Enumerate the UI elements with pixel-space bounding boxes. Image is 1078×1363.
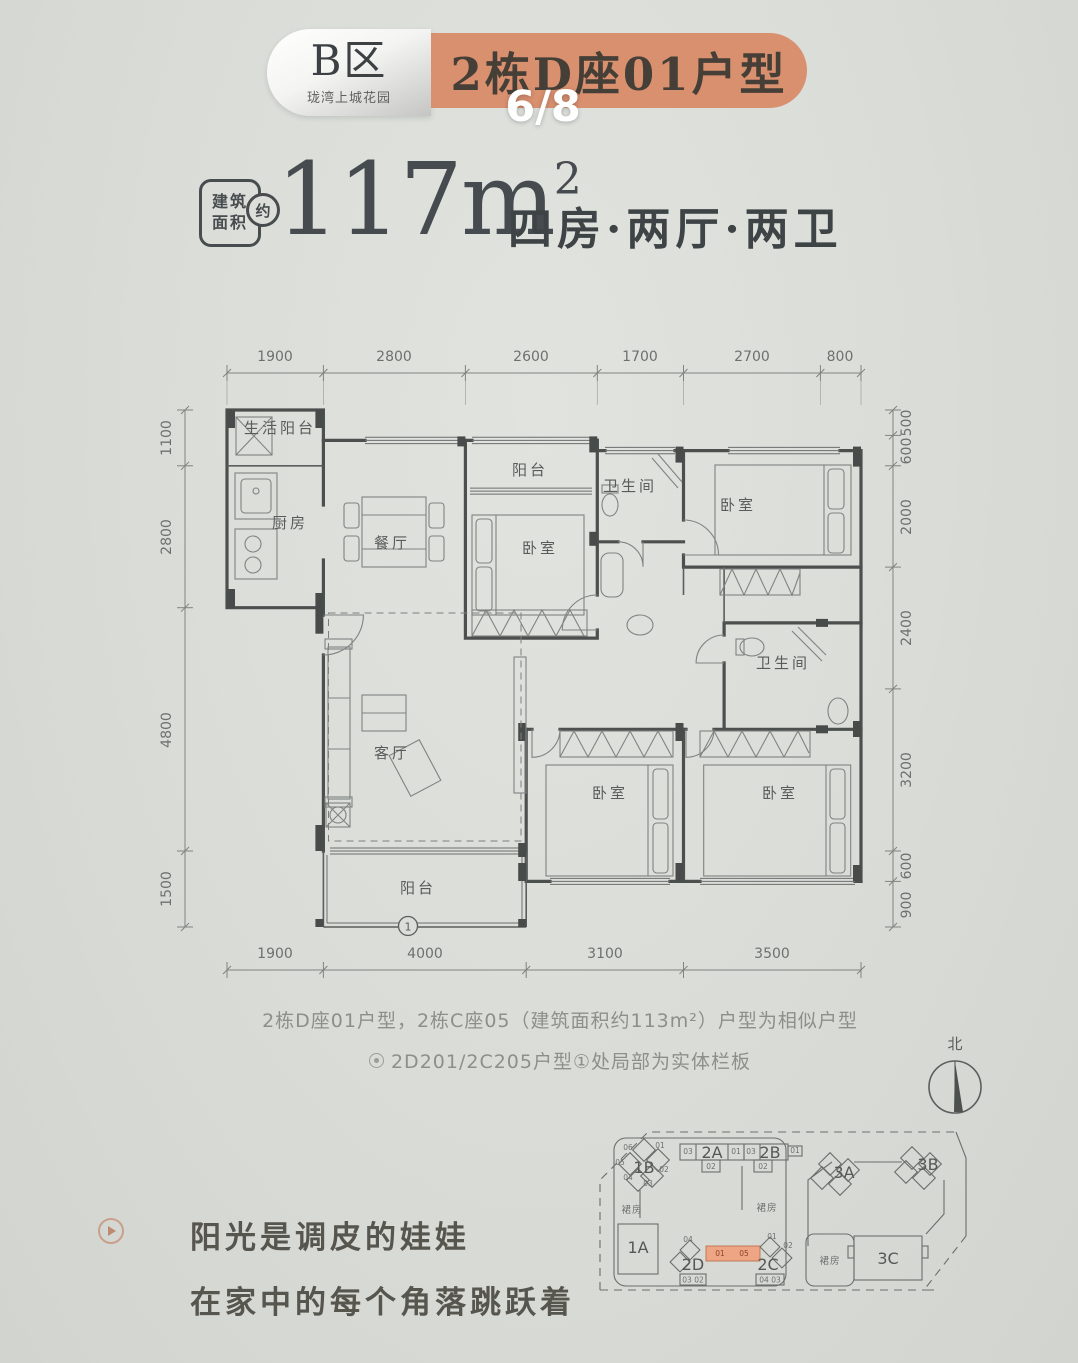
notes: 2栋D座01户型，2栋C座05（建筑面积约113m²）户型为相似户型 2D201… bbox=[150, 1006, 970, 1074]
site-podium1-label: 裙房 bbox=[621, 1204, 642, 1216]
unit-2b-03: 03 bbox=[746, 1147, 756, 1156]
dim-left-4: 1500 bbox=[159, 871, 175, 907]
dimension-left: 1100 2800 4800 1500 bbox=[159, 406, 193, 931]
label-balcony-top: 阳台 bbox=[512, 461, 548, 479]
dim-right-1: 500 bbox=[899, 410, 915, 437]
site-building-2a: 2A bbox=[701, 1143, 722, 1162]
note-line2-row: 2D201/2C205户型①处局部为实体栏板 bbox=[150, 1047, 970, 1074]
label-kitchen: 厨房 bbox=[272, 514, 308, 532]
dim-bottom-4: 3500 bbox=[754, 946, 790, 962]
unit-2c-01: 01 bbox=[767, 1232, 777, 1241]
balcony-marker: 1 bbox=[399, 917, 418, 936]
north-compass: 北 bbox=[915, 1032, 995, 1124]
unit-1b-01: 01 bbox=[655, 1141, 665, 1150]
site-building-2d: 2D bbox=[682, 1255, 705, 1274]
dim-right-7: 900 bbox=[899, 892, 915, 919]
note-bullet-icon bbox=[369, 1053, 384, 1068]
dim-top-6: 800 bbox=[827, 349, 854, 365]
unit-2c-04: 04 bbox=[759, 1276, 769, 1285]
site-building-1b: 1B bbox=[633, 1158, 654, 1177]
floorplan-poster: B区 珑湾上城花园 2栋D座01户型 6/8 建筑 面积 约 117m2 四房·… bbox=[0, 0, 1078, 1363]
site-building-1a: 1A bbox=[627, 1238, 648, 1257]
dimension-bottom: 1900 4000 3100 3500 bbox=[223, 946, 865, 978]
dim-top-4: 1700 bbox=[622, 349, 658, 365]
site-building-2b: 2B bbox=[759, 1143, 780, 1162]
zone-subtitle: 珑湾上城花园 bbox=[307, 87, 391, 106]
unit-2a-03: 03 bbox=[683, 1147, 693, 1156]
dim-bottom-3: 3100 bbox=[587, 946, 623, 962]
page-indicator: 6/8 bbox=[498, 82, 588, 132]
unit-2a-01: 01 bbox=[731, 1147, 741, 1156]
furniture bbox=[235, 417, 851, 876]
label-bedroom-a: 卧室 bbox=[522, 539, 558, 557]
label-bath-a: 卫生间 bbox=[603, 477, 657, 495]
zone-title: B区 bbox=[311, 40, 388, 82]
site-highlight-unit bbox=[706, 1246, 760, 1261]
highlight-unit-05: 05 bbox=[739, 1249, 749, 1258]
unit-2b-01: 01 bbox=[790, 1146, 800, 1155]
tagline-line1: 阳光是调皮的娃娃 bbox=[190, 1212, 470, 1257]
unit-1b-02: 02 bbox=[659, 1165, 669, 1174]
tagline-bullet-icon bbox=[98, 1218, 124, 1244]
tagline-line2: 在家中的每个角落跳跃着 bbox=[190, 1277, 575, 1322]
site-podium3-label: 裙房 bbox=[819, 1255, 840, 1267]
area-badge-line1: 建筑 bbox=[212, 192, 248, 213]
dim-right-4: 2400 bbox=[899, 610, 915, 646]
dimension-right: 500 600 2000 2400 3200 600 900 bbox=[885, 406, 915, 931]
unit-1b-05: 05 bbox=[615, 1158, 625, 1167]
unit-2b-02: 02 bbox=[758, 1162, 768, 1171]
area-badge-line2: 面积 bbox=[212, 213, 248, 234]
dim-right-3: 2000 bbox=[899, 499, 915, 535]
site-building-2c: 2C bbox=[757, 1255, 778, 1274]
unit-2c-02: 02 bbox=[783, 1241, 793, 1250]
north-label: 北 bbox=[947, 1035, 962, 1053]
floor-plan: 1900 2800 2600 1700 2700 800 1100 2800 4… bbox=[140, 325, 960, 990]
dim-left-1: 1100 bbox=[159, 420, 175, 456]
approx-circle: 约 bbox=[246, 193, 280, 227]
dim-top-2: 2800 bbox=[376, 349, 412, 365]
unit-title-pill: 2栋D座01户型 bbox=[431, 33, 807, 108]
balcony-marker-number: 1 bbox=[405, 921, 412, 934]
site-building-3c: 3C bbox=[877, 1249, 898, 1268]
dim-right-5: 3200 bbox=[899, 752, 915, 788]
note-line1: 2栋D座01户型，2栋C座05（建筑面积约113m²）户型为相似户型 bbox=[150, 1006, 970, 1033]
dim-top-1: 1900 bbox=[257, 349, 293, 365]
unit-1b-06: 06 bbox=[623, 1143, 633, 1152]
dim-top-5: 2700 bbox=[734, 349, 770, 365]
label-service-balcony: 生活阳台 bbox=[244, 419, 316, 437]
dim-bottom-2: 4000 bbox=[407, 946, 443, 962]
label-bath-b: 卫生间 bbox=[756, 654, 810, 672]
label-bedroom-b: 卧室 bbox=[720, 496, 756, 514]
site-building-3b: 3B bbox=[917, 1155, 938, 1174]
site-podium-left: 1B 06 01 05 02 04 03 2A 03 01 02 2B 03 0… bbox=[614, 1138, 802, 1286]
dim-left-3: 4800 bbox=[159, 712, 175, 748]
unit-2d-04: 04 bbox=[683, 1235, 693, 1244]
dim-right-2: 600 bbox=[899, 438, 915, 465]
unit-2c-03: 03 bbox=[771, 1276, 781, 1285]
dim-top-3: 2600 bbox=[513, 349, 549, 365]
label-balcony-bottom: 阳台 bbox=[400, 879, 436, 897]
dim-left-2: 2800 bbox=[159, 519, 175, 555]
label-bedroom-d: 卧室 bbox=[762, 784, 798, 802]
layout-summary: 四房·两厅·两卫 bbox=[508, 193, 843, 257]
unit-2d-03: 03 bbox=[682, 1276, 692, 1285]
site-podium2-label: 裙房 bbox=[756, 1202, 777, 1214]
zone-badge: B区 珑湾上城花园 bbox=[267, 29, 431, 116]
note-line2: 2D201/2C205户型①处局部为实体栏板 bbox=[391, 1047, 751, 1074]
unit-1b-04: 04 bbox=[623, 1173, 633, 1182]
unit-1b-03: 03 bbox=[643, 1179, 653, 1188]
dim-bottom-1: 1900 bbox=[257, 946, 293, 962]
dimension-top: 1900 2800 2600 1700 2700 800 bbox=[223, 349, 865, 405]
highlight-unit-01: 01 bbox=[715, 1249, 725, 1258]
site-cluster-right: 3A 3B 裙房 3C bbox=[806, 1147, 944, 1286]
unit-2d-02: 02 bbox=[694, 1276, 704, 1285]
site-key-plan: 1B 06 01 05 02 04 03 2A 03 01 02 2B 03 0… bbox=[592, 1118, 1070, 1323]
label-living: 客厅 bbox=[374, 744, 410, 762]
dim-right-6: 600 bbox=[899, 853, 915, 880]
site-building-3a: 3A bbox=[833, 1163, 854, 1182]
unit-2a-02: 02 bbox=[706, 1162, 716, 1171]
label-dining: 餐厅 bbox=[374, 534, 410, 552]
label-bedroom-c: 卧室 bbox=[592, 784, 628, 802]
